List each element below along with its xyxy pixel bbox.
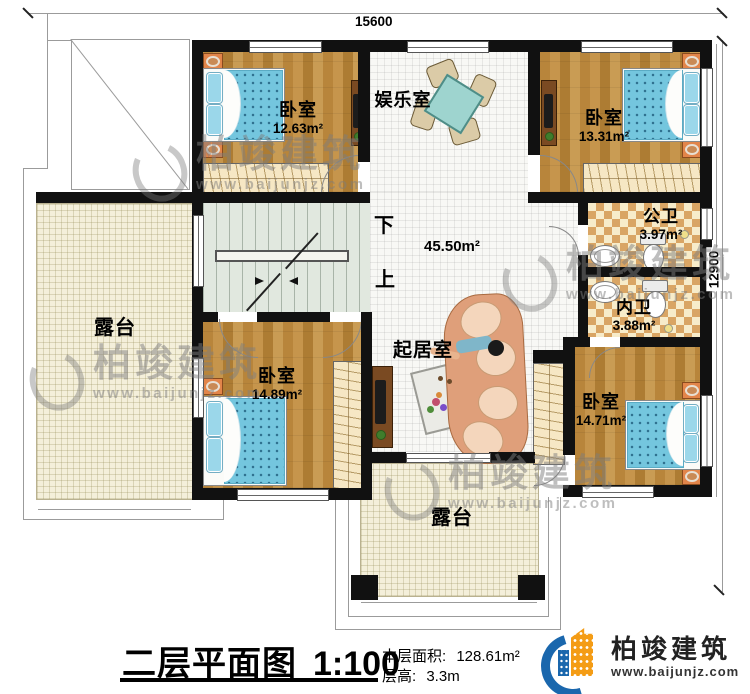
- pillow: [207, 438, 222, 472]
- dimension-height: 12900: [706, 248, 721, 292]
- room-area: 3.97m²: [616, 227, 706, 243]
- door-arc: [534, 455, 565, 486]
- room-area: 14.89m²: [232, 387, 322, 403]
- pillow: [684, 73, 699, 103]
- room-name: 卧室: [556, 392, 646, 413]
- wall: [361, 312, 372, 488]
- floor-plan: 15600 12900: [0, 0, 750, 694]
- window: [237, 489, 329, 501]
- nightstand: [682, 468, 702, 485]
- wall: [563, 337, 590, 347]
- window: [193, 215, 204, 287]
- step-line: [548, 497, 549, 617]
- terrace-bottom-floor: [360, 463, 539, 597]
- room-label-terrace-bottom: 露台: [431, 507, 473, 530]
- window: [193, 358, 204, 418]
- pillow: [207, 402, 222, 436]
- window: [701, 395, 713, 467]
- roof-outline: [38, 509, 191, 510]
- wall: [533, 350, 563, 363]
- sink: [590, 245, 620, 267]
- room-label-entertainment: 娱乐室: [372, 90, 434, 111]
- nightstand: [203, 141, 223, 158]
- brand-logo: 柏竣建筑 www.baijunjz.com: [541, 626, 739, 688]
- roof-outline: [47, 40, 71, 41]
- wall: [203, 192, 370, 203]
- pillow: [207, 105, 222, 135]
- room-label-living: 起居室: [393, 340, 453, 362]
- pillow: [207, 73, 222, 103]
- step-line: [361, 602, 537, 603]
- brand-name: 柏竣建筑: [611, 635, 739, 664]
- roof-outline: [223, 498, 224, 520]
- step-line: [335, 629, 561, 630]
- wall: [36, 192, 203, 203]
- flower: [432, 398, 440, 406]
- person-torso: [455, 335, 493, 354]
- room-name: 公卫: [616, 207, 706, 227]
- flower: [436, 392, 442, 398]
- terrace-left-floor: [36, 203, 194, 500]
- brand-logo-icon: [541, 626, 605, 688]
- wall: [192, 312, 218, 322]
- person-head: [488, 340, 504, 356]
- wall: [358, 40, 370, 162]
- room-area: 3.88m²: [589, 318, 679, 334]
- plant: [545, 132, 554, 141]
- room-name: 娱乐室: [372, 90, 434, 111]
- room-name: 内卫: [589, 298, 679, 318]
- room-label-bedroom-bottomleft: 卧室 14.89m²: [232, 366, 322, 402]
- room-area: 13.31m²: [559, 129, 649, 145]
- wall: [192, 40, 203, 203]
- wardrobe: [583, 163, 702, 194]
- room-label-bedroom-topright: 卧室 13.31m²: [559, 108, 649, 144]
- terrace-pillar: [351, 575, 378, 600]
- floor-area-label: 本层面积:: [382, 648, 446, 665]
- wall: [588, 267, 700, 277]
- stair-arrow: [255, 277, 264, 285]
- terrace-pillar: [518, 575, 545, 600]
- room-name: 卧室: [559, 108, 649, 129]
- roof-outline: [23, 168, 48, 169]
- window: [407, 41, 489, 53]
- room-area: 12.63m²: [253, 121, 343, 137]
- floor-height-value: 3.3m: [426, 668, 459, 685]
- sofa: [446, 294, 526, 464]
- stair-arrow: [289, 277, 298, 285]
- window: [582, 486, 654, 498]
- nightstand: [682, 382, 702, 399]
- pillow: [684, 105, 699, 135]
- step-line: [335, 497, 336, 630]
- wall: [257, 312, 330, 322]
- table-dot: [438, 376, 443, 381]
- window: [249, 41, 322, 53]
- table-dot: [447, 379, 452, 384]
- logo-building-orange: [571, 628, 593, 676]
- dimension-line-right: [722, 40, 723, 592]
- room-label-bedroom-bottomright: 卧室 14.71m²: [556, 392, 646, 428]
- floor-height-info: 层高: 3.3m: [382, 665, 460, 686]
- title-underline: [120, 678, 378, 682]
- monitor: [544, 94, 553, 128]
- stair-handrail: [215, 250, 349, 262]
- pillow: [684, 405, 698, 433]
- roof-outline: [47, 14, 48, 168]
- floor-height-label: 层高:: [382, 668, 416, 685]
- stairs-down-label: 下: [374, 215, 394, 238]
- wall: [578, 192, 588, 225]
- dimension-width: 15600: [352, 14, 396, 29]
- room-name: 卧室: [232, 366, 322, 387]
- flower: [440, 404, 447, 411]
- room-label-bedroom-topleft: 卧室 12.63m²: [253, 100, 343, 136]
- wardrobe: [203, 163, 329, 194]
- room-label-private-bath: 内卫 3.88m²: [589, 298, 679, 333]
- flower: [427, 406, 434, 413]
- step-line: [348, 616, 549, 617]
- pillow: [684, 434, 698, 462]
- hall-area-label: 45.50m²: [424, 238, 480, 255]
- floor-area-value: 128.61m²: [456, 648, 519, 665]
- wall: [620, 337, 712, 347]
- wall: [489, 452, 535, 463]
- nightstand: [203, 378, 223, 395]
- wardrobe: [333, 361, 363, 489]
- nightstand: [682, 141, 702, 158]
- step-line: [560, 497, 561, 630]
- logo-building-blue: [558, 650, 569, 676]
- roof-outline: [23, 519, 224, 520]
- room-label-public-bath: 公卫 3.97m²: [616, 207, 706, 242]
- wall: [528, 192, 712, 203]
- window: [581, 41, 673, 53]
- window: [701, 68, 713, 147]
- floor-area-info: 本层面积: 128.61m²: [382, 645, 520, 666]
- terrace-door-threshold: [406, 453, 491, 463]
- wall: [528, 40, 540, 155]
- room-label-terrace-left: 露台: [94, 317, 136, 340]
- stairs-up-label: 上: [375, 269, 395, 292]
- tv-screen: [375, 380, 386, 424]
- room-area: 14.71m²: [556, 413, 646, 429]
- wall: [578, 255, 588, 337]
- room-name: 卧室: [253, 100, 343, 121]
- brand-website: www.baijunjz.com: [611, 664, 739, 679]
- plant: [376, 430, 386, 440]
- step-line: [348, 497, 349, 617]
- roof-outline: [23, 168, 24, 520]
